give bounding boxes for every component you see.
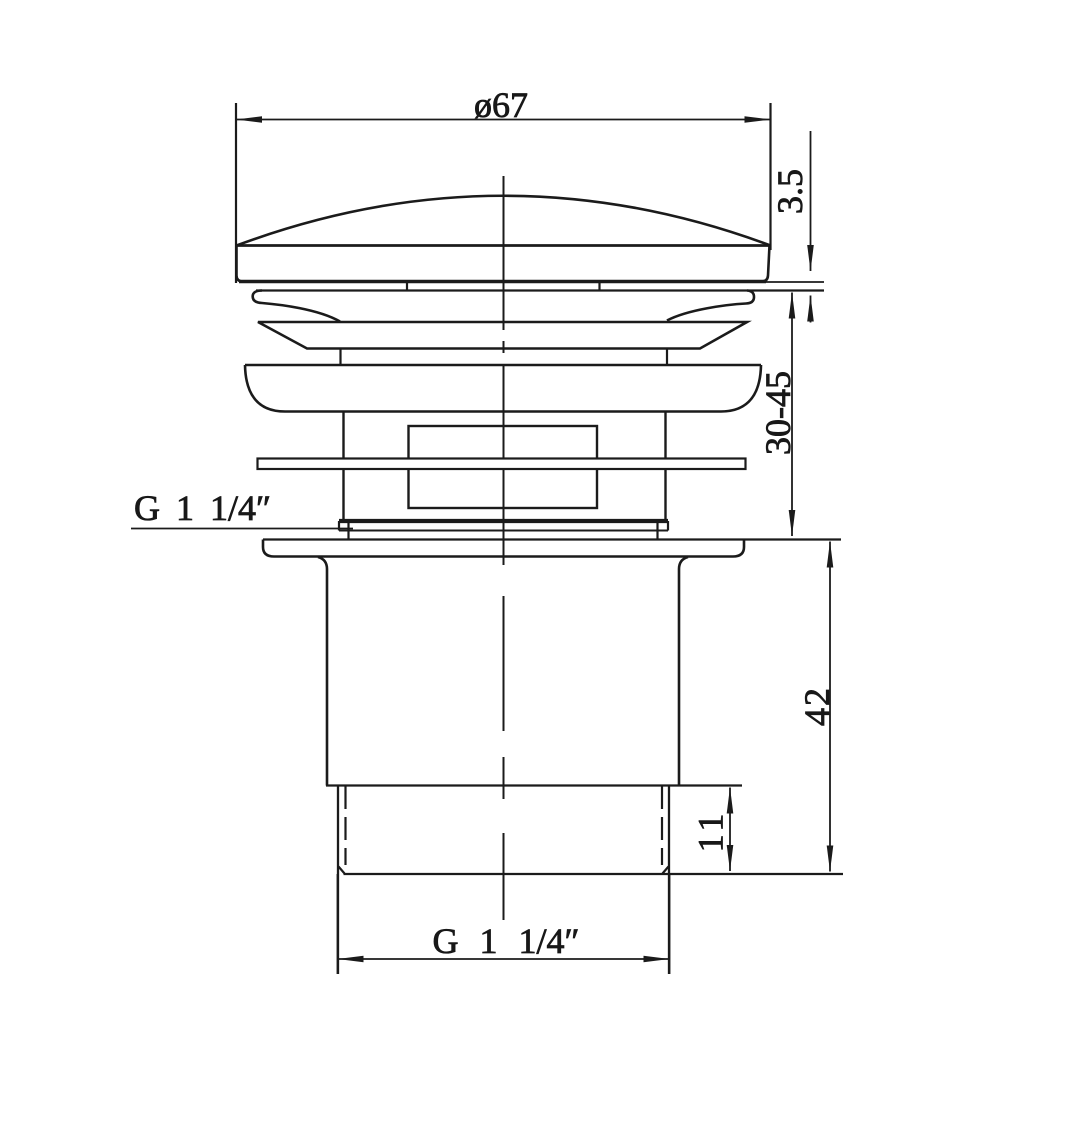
svg-text:11: 11 (691, 810, 731, 853)
svg-text:ø67: ø67 (474, 85, 528, 125)
svg-text:42: 42 (797, 686, 837, 726)
svg-text:G 1 1/4″: G 1 1/4″ (134, 488, 271, 528)
svg-text:3.5: 3.5 (770, 169, 810, 214)
svg-text:30-45: 30-45 (758, 371, 798, 455)
svg-text:G 1 1/4″: G 1 1/4″ (433, 921, 580, 961)
